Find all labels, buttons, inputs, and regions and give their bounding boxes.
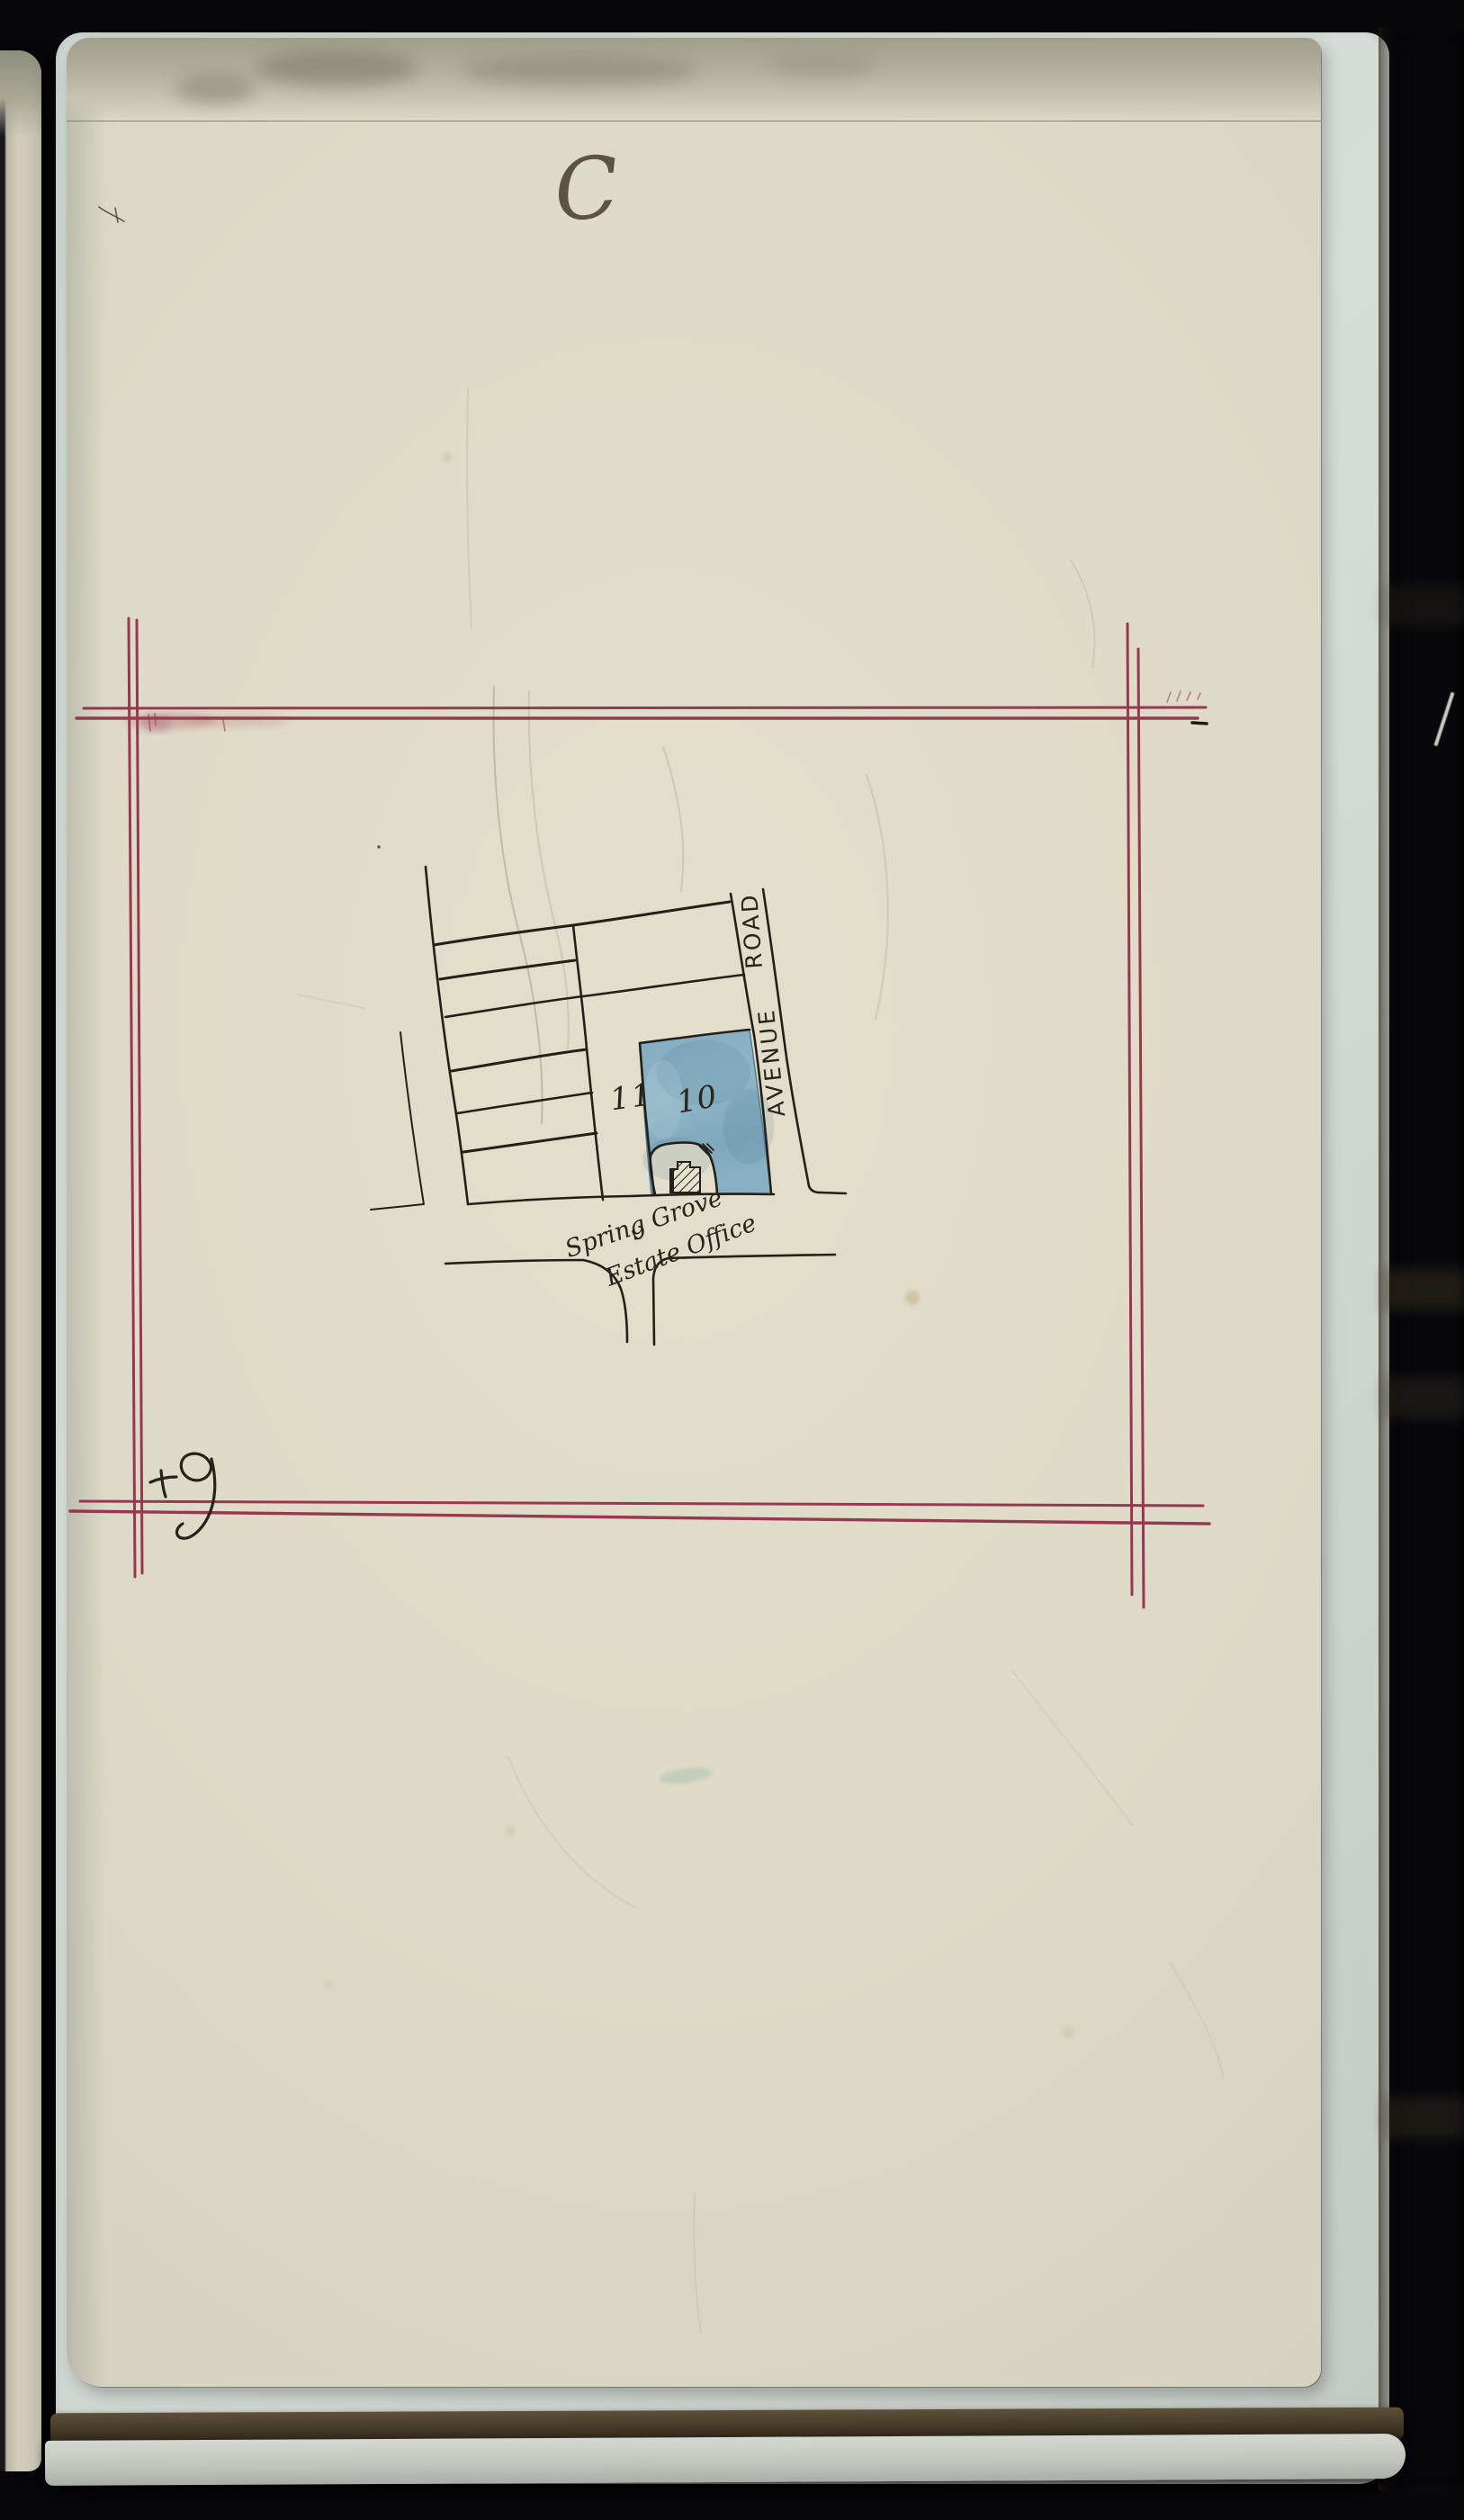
strip-line (445, 975, 744, 1017)
road-label-road: ROAD (736, 892, 768, 970)
strip-line (463, 1133, 597, 1152)
frame-bottom-line-1 (80, 1501, 1203, 1506)
south-road-west (445, 1260, 627, 1342)
frame-right-line-1 (1127, 624, 1132, 1595)
ink-speck (99, 207, 381, 849)
block-left-edge (426, 867, 468, 1204)
red-flicks (1167, 691, 1200, 702)
book-scan: 11 10 ROAD AVENUE Spring Grove Estate Of… (0, 0, 1464, 2520)
plus-nine-scribble (150, 1453, 215, 1538)
block-divider (573, 925, 603, 1200)
block-bottom-edge (468, 1194, 774, 1204)
blue-smudge (658, 1765, 714, 1786)
south-road-east (653, 1255, 835, 1345)
west-boundary (371, 1032, 424, 1210)
index-letter: C (550, 138, 623, 241)
strip-line (452, 1049, 587, 1071)
strip-line (440, 960, 575, 979)
building-solid-wall (669, 1169, 674, 1192)
frame-left-line-1 (129, 618, 135, 1577)
paper-creases (297, 389, 1224, 2333)
parcel-10-label: 10 (674, 1078, 721, 1120)
frame-bottom-line-2 (70, 1511, 1209, 1524)
frame-left-line-2 (137, 620, 142, 1573)
strip-line (457, 1093, 592, 1113)
strip-line (434, 902, 730, 945)
parcel-11-label: 11 (607, 1076, 654, 1118)
frame-right-line-2 (1138, 649, 1144, 1607)
ink-dash-mark (1192, 723, 1207, 724)
frame-top-line-1 (84, 707, 1206, 708)
page-artwork: 11 10 ROAD AVENUE Spring Grove Estate Of… (0, 0, 1464, 2520)
